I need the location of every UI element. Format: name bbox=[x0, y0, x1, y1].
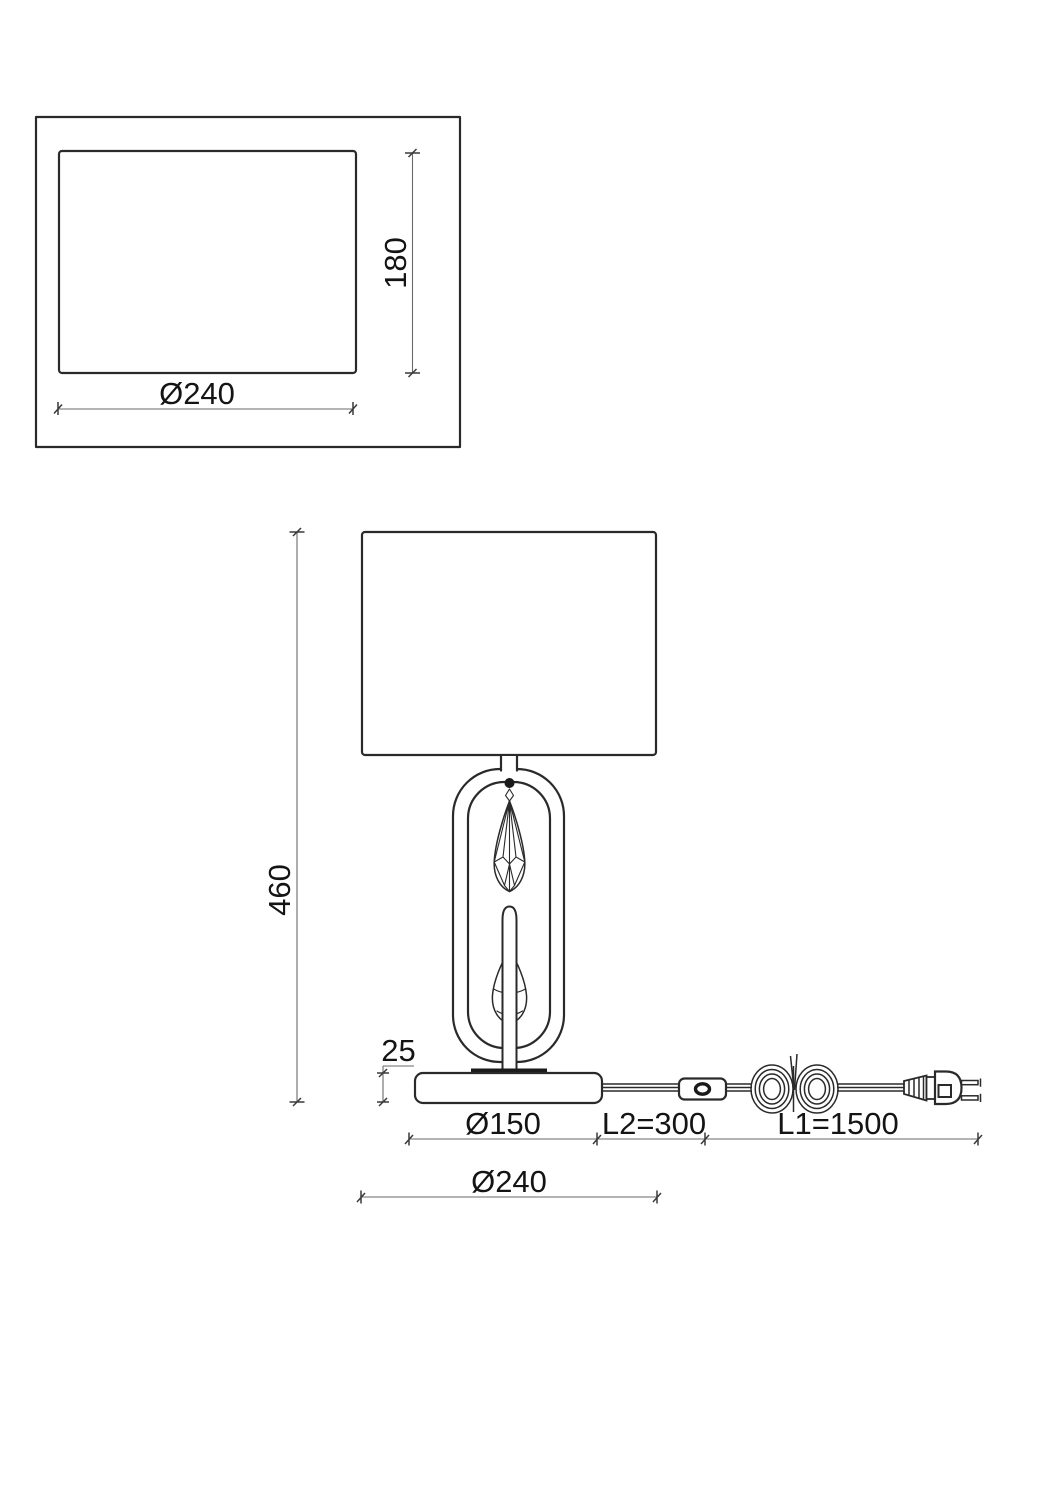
front-view: 460 25 Ø150 L2=300 L1=1500 Ø240 bbox=[262, 528, 982, 1204]
inline-switch bbox=[679, 1079, 726, 1100]
top-view: Ø240 180 bbox=[36, 117, 460, 447]
top-view-depth-label: 180 bbox=[378, 237, 413, 289]
coil-loop bbox=[809, 1079, 826, 1100]
switch-body bbox=[679, 1079, 726, 1100]
shade-width-label: Ø240 bbox=[471, 1164, 547, 1199]
bottom-chain-dimension: Ø150 L2=300 L1=1500 bbox=[405, 1106, 982, 1146]
crystal-drop-upper bbox=[494, 778, 525, 892]
lamp-technical-drawing: Ø240 180 bbox=[0, 0, 1060, 1500]
dimension-line bbox=[383, 1066, 414, 1102]
top-view-width-dimension: Ø240 bbox=[54, 376, 357, 415]
shade-width-dimension: Ø240 bbox=[357, 1164, 661, 1204]
drawing-page: Ø240 180 bbox=[0, 0, 1060, 1500]
plug-prong-bottom bbox=[962, 1096, 979, 1100]
cord-coil bbox=[751, 1054, 838, 1113]
base-thickness-label: 25 bbox=[381, 1033, 415, 1068]
lamp-neck bbox=[501, 756, 517, 771]
hanger-ball bbox=[505, 778, 515, 788]
top-view-shade-outline bbox=[59, 151, 356, 373]
crystal-facets bbox=[494, 801, 525, 892]
neck-fill bbox=[502, 756, 517, 771]
lamp-base bbox=[415, 1073, 602, 1103]
power-cord-segment-2 bbox=[726, 1084, 752, 1091]
coil-loop bbox=[755, 1070, 789, 1109]
plug-collar bbox=[927, 1077, 936, 1099]
plug-prong-top bbox=[962, 1081, 979, 1085]
coil-loop bbox=[800, 1070, 834, 1109]
top-view-depth-dimension: 180 bbox=[378, 149, 420, 377]
top-view-width-label: Ø240 bbox=[159, 376, 235, 411]
power-cord-segment-1 bbox=[602, 1084, 679, 1091]
power-cord-segment-3 bbox=[837, 1084, 904, 1091]
base-thickness-dimension: 25 bbox=[377, 1033, 416, 1106]
coil-loop bbox=[764, 1079, 781, 1100]
lamp-shade bbox=[362, 532, 656, 755]
lamp-stem bbox=[503, 907, 517, 1073]
power-plug bbox=[904, 1072, 981, 1105]
hanger-hook bbox=[506, 789, 514, 801]
base-width-label: Ø150 bbox=[465, 1106, 541, 1141]
total-height-label: 460 bbox=[262, 864, 297, 916]
switch-cord-label: L2=300 bbox=[602, 1106, 706, 1141]
total-height-dimension: 460 bbox=[262, 528, 305, 1106]
plug-cord-label: L1=1500 bbox=[777, 1106, 899, 1141]
